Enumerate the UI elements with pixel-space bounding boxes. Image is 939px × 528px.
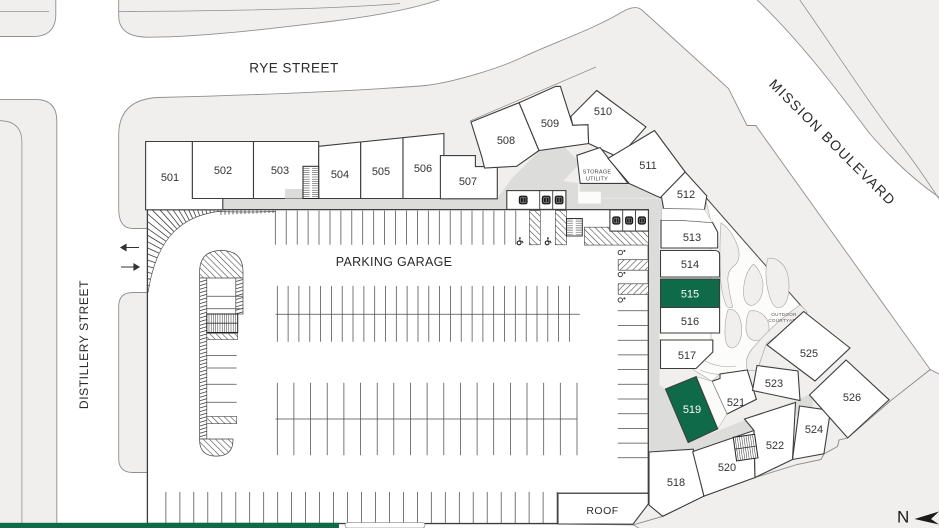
svg-text:522: 522 bbox=[766, 440, 784, 452]
svg-text:PARKING GARAGE: PARKING GARAGE bbox=[336, 255, 453, 269]
svg-text:512: 512 bbox=[677, 189, 695, 201]
svg-text:525: 525 bbox=[800, 348, 818, 360]
svg-text:509: 509 bbox=[541, 118, 559, 130]
svg-text:503: 503 bbox=[271, 165, 289, 177]
svg-text:516: 516 bbox=[681, 316, 699, 328]
svg-text:505: 505 bbox=[372, 166, 390, 178]
svg-text:513: 513 bbox=[683, 232, 701, 244]
svg-text:504: 504 bbox=[331, 169, 349, 181]
svg-text:ROOF: ROOF bbox=[586, 505, 618, 517]
svg-text:515: 515 bbox=[681, 289, 699, 301]
svg-text:501: 501 bbox=[161, 172, 179, 184]
svg-text:517: 517 bbox=[678, 350, 696, 362]
svg-text:523: 523 bbox=[765, 378, 783, 390]
svg-text:514: 514 bbox=[681, 259, 699, 271]
svg-text:STORAGE: STORAGE bbox=[583, 170, 612, 176]
svg-text:519: 519 bbox=[683, 404, 701, 416]
svg-text:507: 507 bbox=[459, 176, 477, 188]
svg-text:511: 511 bbox=[639, 160, 657, 172]
svg-text:510: 510 bbox=[594, 106, 612, 118]
svg-text:UTILITY: UTILITY bbox=[586, 177, 608, 183]
svg-text:502: 502 bbox=[214, 165, 232, 177]
svg-text:508: 508 bbox=[497, 135, 515, 147]
svg-text:524: 524 bbox=[805, 424, 823, 436]
svg-text:N: N bbox=[897, 508, 909, 527]
svg-text:OUTDOOR: OUTDOOR bbox=[771, 312, 797, 317]
svg-text:526: 526 bbox=[843, 392, 861, 404]
svg-text:DISTILLERY STREET: DISTILLERY STREET bbox=[77, 280, 91, 409]
svg-text:506: 506 bbox=[414, 163, 432, 175]
svg-text:RYE STREET: RYE STREET bbox=[249, 61, 339, 76]
svg-text:520: 520 bbox=[718, 462, 736, 474]
svg-text:521: 521 bbox=[727, 397, 745, 409]
svg-text:518: 518 bbox=[667, 477, 685, 489]
